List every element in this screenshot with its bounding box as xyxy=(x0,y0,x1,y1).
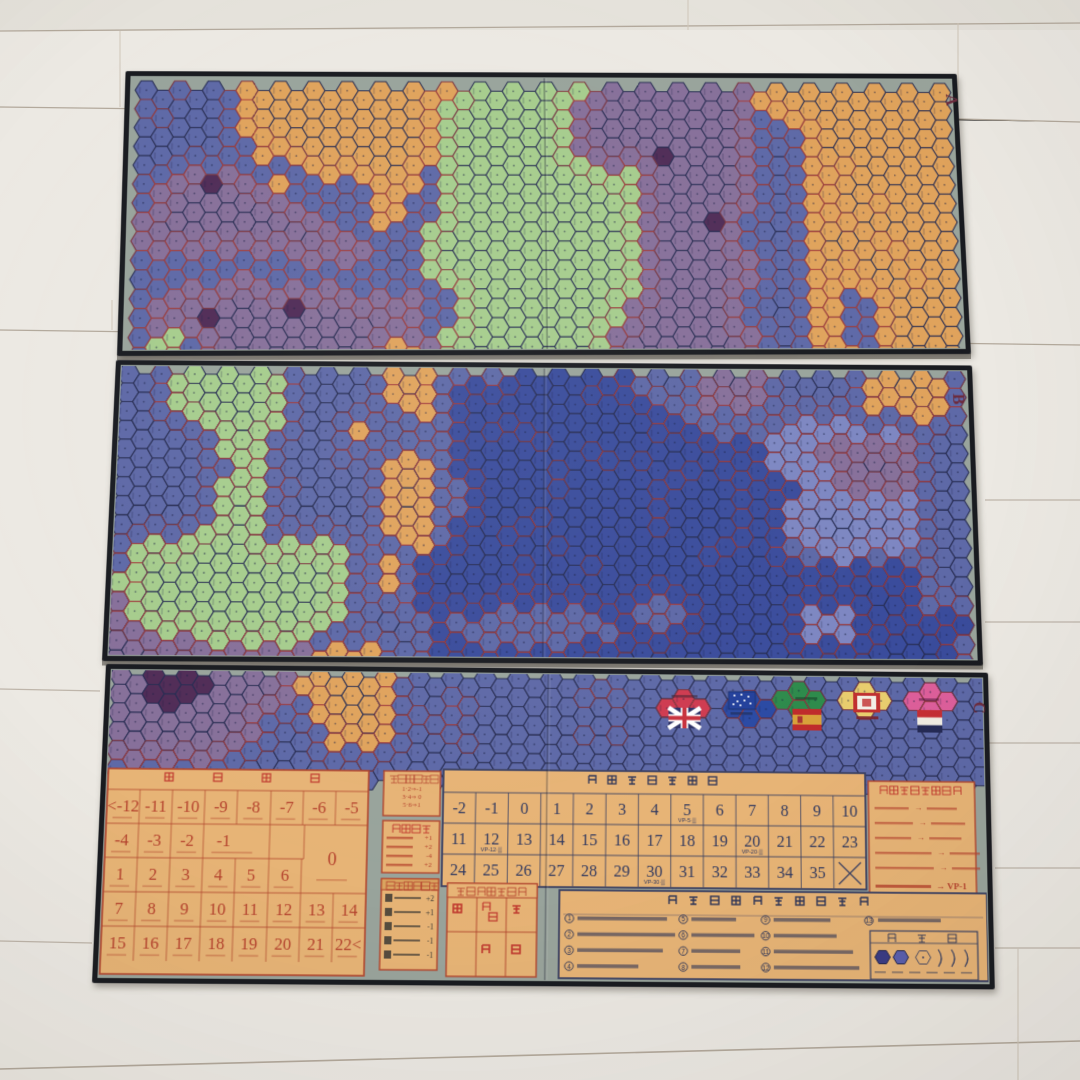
svg-text:19: 19 xyxy=(712,833,728,851)
svg-text:9: 9 xyxy=(813,803,821,820)
svg-text:9: 9 xyxy=(764,917,768,924)
svg-text:22<: 22< xyxy=(335,936,362,954)
svg-text:0: 0 xyxy=(327,849,337,870)
svg-text:-9: -9 xyxy=(214,799,229,817)
svg-text:8: 8 xyxy=(780,803,788,820)
svg-text:11: 11 xyxy=(451,831,467,849)
svg-text:22: 22 xyxy=(809,834,825,852)
svg-text:-2: -2 xyxy=(452,800,466,818)
svg-text:3: 3 xyxy=(567,947,571,954)
svg-text:34: 34 xyxy=(777,864,794,882)
svg-text:4: 4 xyxy=(651,802,659,819)
svg-text:17: 17 xyxy=(646,832,662,850)
svg-text:24: 24 xyxy=(450,862,467,880)
svg-text:25: 25 xyxy=(483,862,500,880)
svg-text:2: 2 xyxy=(567,932,571,939)
svg-text:5·6⇒1: 5·6⇒1 xyxy=(403,802,421,809)
svg-text:13: 13 xyxy=(865,918,873,925)
svg-text:21: 21 xyxy=(777,833,793,851)
svg-text:+2: +2 xyxy=(426,895,435,903)
svg-text:35: 35 xyxy=(809,865,826,883)
svg-text:-10: -10 xyxy=(177,798,200,816)
svg-text:→ VP-1: → VP-1 xyxy=(936,881,967,892)
svg-text:21: 21 xyxy=(307,936,324,954)
svg-text:13: 13 xyxy=(308,902,325,920)
svg-text:B: B xyxy=(949,394,969,405)
svg-text:2: 2 xyxy=(585,801,593,818)
svg-text:10: 10 xyxy=(841,803,858,821)
svg-text:+1: +1 xyxy=(426,909,435,917)
svg-text:15: 15 xyxy=(581,832,598,850)
svg-text:VP-12·▒: VP-12·▒ xyxy=(481,847,503,854)
svg-text:10: 10 xyxy=(208,901,226,919)
svg-text:-3: -3 xyxy=(147,832,162,850)
svg-text:8: 8 xyxy=(147,901,156,919)
svg-text:6: 6 xyxy=(681,932,685,939)
svg-text:16: 16 xyxy=(614,832,631,850)
svg-text:11: 11 xyxy=(762,949,769,956)
svg-text:9: 9 xyxy=(180,901,189,919)
svg-text:→: → xyxy=(915,804,923,813)
svg-text:-1: -1 xyxy=(427,937,434,945)
svg-text:1: 1 xyxy=(553,801,561,818)
svg-text:-1: -1 xyxy=(427,952,434,960)
svg-text:-8: -8 xyxy=(246,799,261,817)
svg-text:3: 3 xyxy=(181,867,190,885)
svg-text:1: 1 xyxy=(116,866,125,884)
svg-text:-11: -11 xyxy=(145,798,167,816)
svg-text:13: 13 xyxy=(516,831,533,849)
svg-text:5: 5 xyxy=(683,802,691,819)
svg-text:4: 4 xyxy=(567,963,571,970)
svg-text:-4: -4 xyxy=(426,853,433,860)
svg-text:0: 0 xyxy=(520,800,529,817)
svg-text:3: 3 xyxy=(618,801,626,818)
svg-text:14: 14 xyxy=(341,902,358,920)
svg-text:12: 12 xyxy=(275,902,292,920)
svg-text:7: 7 xyxy=(114,900,123,918)
svg-text:2: 2 xyxy=(148,866,157,884)
svg-text:→: → xyxy=(937,848,945,857)
svg-text:33: 33 xyxy=(744,864,760,882)
svg-text:10: 10 xyxy=(762,933,770,940)
svg-text:+2: +2 xyxy=(424,844,432,851)
svg-text:→: → xyxy=(917,833,925,842)
svg-text:30: 30 xyxy=(646,863,663,881)
svg-text:26: 26 xyxy=(515,862,532,880)
svg-text:11: 11 xyxy=(242,901,259,919)
svg-text:VP-30·▒: VP-30·▒ xyxy=(644,879,666,886)
svg-text:15: 15 xyxy=(109,935,127,953)
svg-text:-7: -7 xyxy=(280,799,294,817)
svg-text:7: 7 xyxy=(681,948,685,955)
svg-text:VP-20·▒: VP-20·▒ xyxy=(742,849,763,856)
svg-text:12: 12 xyxy=(483,831,499,849)
svg-text:-6: -6 xyxy=(312,800,326,818)
svg-text:5: 5 xyxy=(681,917,685,924)
svg-text:23: 23 xyxy=(842,834,859,852)
svg-text:<-12: <-12 xyxy=(107,798,140,816)
svg-text:16: 16 xyxy=(141,935,159,953)
svg-text:-1: -1 xyxy=(427,923,434,931)
svg-text:7: 7 xyxy=(748,802,756,819)
svg-text:-5: -5 xyxy=(345,800,359,818)
svg-text:20: 20 xyxy=(274,936,291,954)
svg-text:20: 20 xyxy=(744,833,760,851)
svg-text:17: 17 xyxy=(174,935,192,953)
svg-text:1: 1 xyxy=(567,916,571,923)
svg-text:12: 12 xyxy=(762,965,770,972)
svg-text:29: 29 xyxy=(614,863,631,881)
svg-text:31: 31 xyxy=(679,864,695,882)
svg-text:4: 4 xyxy=(214,867,223,885)
svg-text:27: 27 xyxy=(548,863,565,881)
svg-text:6: 6 xyxy=(716,802,724,819)
svg-text:3·4⇒ 0: 3·4⇒ 0 xyxy=(402,794,421,801)
svg-text:-1: -1 xyxy=(216,833,231,851)
svg-text:+1: +1 xyxy=(425,835,433,842)
svg-text:→: → xyxy=(940,863,948,872)
svg-text:18: 18 xyxy=(679,833,695,851)
svg-text:8: 8 xyxy=(681,964,685,971)
svg-text:-2: -2 xyxy=(180,832,195,850)
svg-text:5: 5 xyxy=(247,867,256,885)
svg-text:32: 32 xyxy=(712,864,728,882)
svg-text:C: C xyxy=(970,702,990,714)
svg-text:-1: -1 xyxy=(485,800,499,818)
svg-text:6: 6 xyxy=(280,867,289,885)
svg-text:14: 14 xyxy=(549,832,566,850)
svg-text:→: → xyxy=(919,818,927,827)
svg-text:19: 19 xyxy=(240,936,257,954)
svg-text:-4: -4 xyxy=(114,832,129,850)
svg-text:18: 18 xyxy=(207,936,225,954)
svg-text:1·2⇒-1: 1·2⇒-1 xyxy=(402,786,422,793)
svg-text:28: 28 xyxy=(581,863,598,881)
svg-text:+2: +2 xyxy=(424,862,432,869)
svg-text:VP-5·▒: VP-5·▒ xyxy=(678,817,696,824)
